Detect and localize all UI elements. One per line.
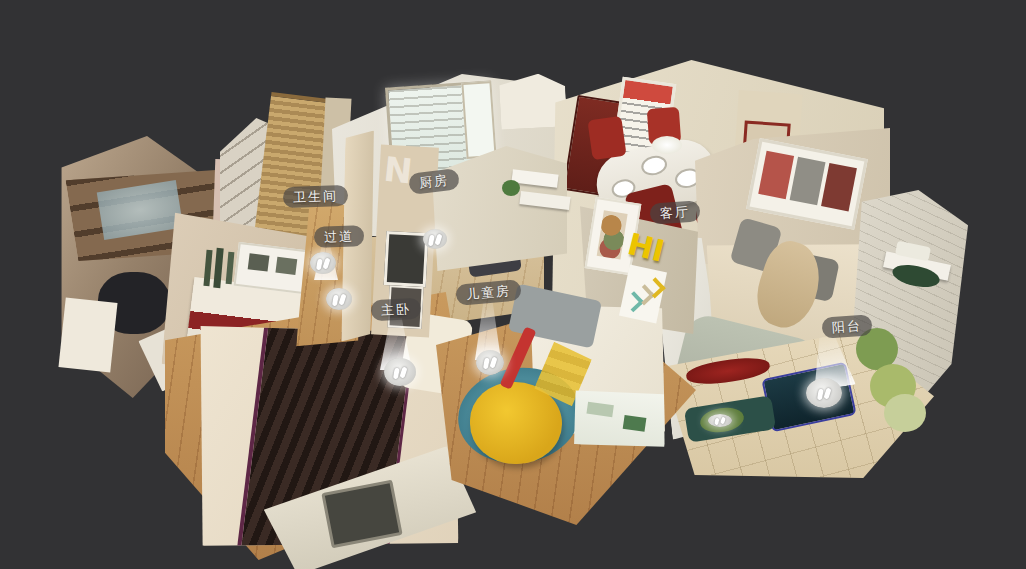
room-label-hallway[interactable]: 过道 (314, 225, 365, 248)
footprints-icon (483, 358, 490, 370)
kitchen-window-pane (461, 81, 496, 159)
footprints-icon (434, 233, 442, 245)
wall-frame (384, 231, 429, 287)
waypoint-marker-kids-room[interactable] (476, 350, 504, 375)
waypoint-marker-hallway-lower[interactable] (326, 288, 352, 310)
waypoint-marker-hallway-upper[interactable] (310, 252, 336, 274)
kids-table-item (623, 415, 647, 432)
study-cabinet (58, 297, 117, 372)
room-label-balcony[interactable]: 阳台 (821, 314, 872, 338)
footprints-icon (399, 366, 407, 378)
room-label-master-bedroom[interactable]: 主卧 (370, 298, 421, 322)
master-wall-frame (234, 242, 309, 294)
mosaic-art (597, 210, 628, 259)
room-label-living-room[interactable]: 客厅 (649, 200, 700, 224)
art-panel (758, 151, 794, 200)
footprints-icon (714, 418, 719, 426)
kids-shelf-plant (502, 180, 520, 196)
dollhouse-3d-view[interactable]: N HI 卫生 (0, 0, 1026, 569)
footprints-icon (823, 387, 831, 399)
waypoint-marker-balcony[interactable] (806, 378, 842, 408)
table-flowers (652, 136, 682, 154)
footprints-icon (332, 294, 339, 306)
waypoint-marker-master-bedroom[interactable] (384, 358, 416, 386)
room-label-bathroom[interactable]: 卫生间 (283, 185, 349, 208)
waypoint-marker-kitchen[interactable] (423, 229, 447, 249)
art-panel (821, 163, 857, 212)
footprints-icon (393, 367, 400, 379)
waypoint-marker-balcony-bench[interactable] (708, 414, 732, 427)
art-panel (790, 157, 826, 206)
balcony-greenery (884, 394, 926, 432)
dining-chair (587, 116, 626, 160)
footprints-icon (428, 234, 435, 246)
footprints-icon (817, 388, 824, 400)
footprints-icon (316, 258, 323, 270)
footprints-icon (322, 257, 330, 269)
plate (639, 153, 669, 177)
footprints-icon (489, 356, 497, 368)
kids-table-item (586, 402, 613, 418)
frame-art (275, 257, 297, 275)
frame-art (248, 253, 270, 271)
footprints-icon (720, 417, 726, 425)
footprints-icon (338, 293, 346, 305)
